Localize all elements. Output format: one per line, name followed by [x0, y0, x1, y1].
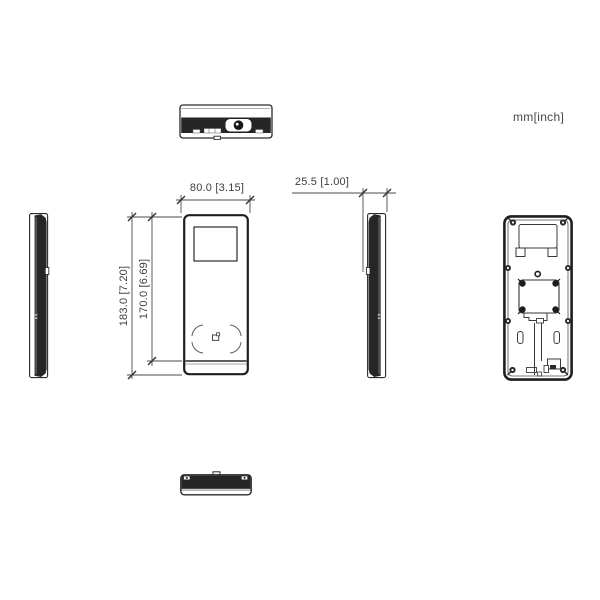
right-side-view	[366, 214, 385, 378]
card-swipe-icon-chip	[217, 333, 220, 336]
dim-width-lines	[176, 195, 255, 213]
screen	[194, 227, 237, 261]
bracket-hook-right	[548, 248, 557, 257]
side-button	[366, 268, 370, 275]
technical-drawing-canvas: 80.0 [3.15] 25.5 [1.00] 183.0 [7.20] 170…	[0, 0, 600, 600]
top-view	[180, 105, 272, 139]
side-mark	[378, 314, 380, 316]
left-side-view	[30, 214, 49, 378]
bottom-connector	[550, 365, 556, 369]
right-side-shade	[378, 217, 381, 374]
center-hole	[535, 271, 540, 276]
side-mark	[35, 317, 37, 319]
unit-label: mm[inch]	[513, 110, 585, 124]
bottom-screw-right	[244, 477, 246, 479]
dim-height-outer-lines	[127, 212, 182, 379]
side-mark	[35, 314, 37, 316]
back-outline	[504, 216, 571, 379]
lens-highlight	[236, 123, 239, 126]
dim-height-inner-lines	[147, 212, 182, 366]
bottom-view-dark-band	[182, 476, 251, 489]
front-view	[184, 215, 248, 374]
dim-width-label: 80.0 [3.15]	[177, 182, 257, 194]
camera-lens-icon	[234, 120, 244, 130]
dim-depth-label: 25.5 [1.00]	[282, 176, 362, 188]
top-port-center	[204, 129, 221, 134]
back-view	[504, 216, 571, 379]
bottom-screw-left	[186, 477, 188, 479]
top-port-right	[256, 130, 264, 134]
channel-notch	[537, 319, 544, 324]
side-mark	[378, 317, 380, 319]
side-button	[45, 268, 49, 275]
dim-height-outer-label: 183.0 [7.20]	[118, 261, 130, 331]
top-port-left	[193, 130, 200, 134]
drawing-linework	[0, 0, 600, 600]
bottom-box-latch	[544, 366, 549, 373]
bracket-hook-left	[516, 248, 525, 257]
left-side-shade	[35, 217, 38, 374]
top-view-tab	[214, 136, 221, 139]
bottom-view	[181, 472, 251, 495]
dimension-lines	[127, 188, 396, 379]
dim-height-inner-label: 170.0 [6.69]	[138, 254, 150, 324]
